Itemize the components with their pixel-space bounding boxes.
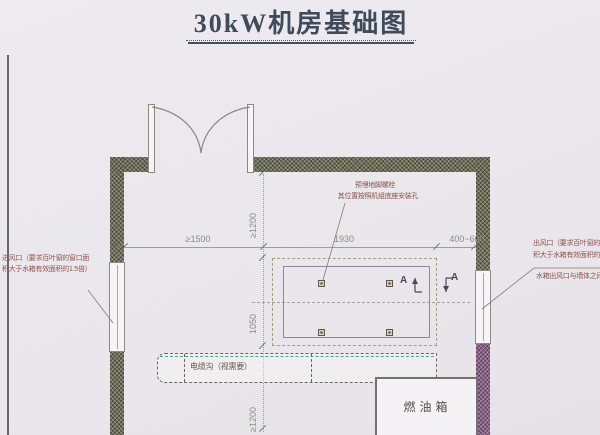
air-inlet-note-line2: 积大于水箱有效面积的1.5倍） — [2, 264, 91, 275]
vertical-centerline — [263, 174, 264, 432]
cable-trench-top-edge — [160, 356, 434, 357]
anchor-bolt — [318, 329, 325, 336]
wall-left-upper — [110, 157, 124, 262]
dim-wall-to-pad-top: ≥1200 — [248, 186, 258, 238]
cable-trench-divider — [311, 354, 312, 382]
air-outlet-note-line3: 水箱出风口与墙体之间 — [536, 271, 600, 282]
drawing-title: 30kW机房基础图 — [188, 3, 414, 44]
wall-left-lower — [110, 352, 124, 435]
anchor-bolt — [386, 329, 393, 336]
anchor-bolt-note-line1: 预埋地脚螺栓 — [330, 180, 420, 191]
door-leaf-right — [247, 104, 254, 173]
louver-line — [483, 273, 484, 341]
title-underline — [186, 40, 416, 41]
anchor-bolt — [386, 280, 393, 287]
air-inlet-louver — [109, 262, 125, 352]
dim-wall-to-pad-left: ≥1500 — [168, 234, 228, 244]
louver-line — [117, 265, 118, 349]
page-edge-line — [7, 55, 9, 435]
dimension-line-horizontal — [124, 247, 476, 248]
wall-right-upper — [476, 157, 490, 270]
section-arrowhead-2 — [443, 286, 449, 292]
dim-pad-to-bottom: ≥1200 — [248, 384, 258, 432]
dim-pad-length: 1930 — [316, 234, 372, 244]
air-outlet-note-line2: 积大于水箱有效面积的1 — [533, 250, 600, 261]
section-label-a2: A — [451, 272, 458, 283]
fuel-tank-label: 燃油箱 — [385, 398, 470, 415]
air-outlet-louver — [475, 270, 491, 344]
foundation-pad-inner — [283, 266, 430, 338]
air-outlet-note-line1: 出风口（要求百叶窗的窗 — [533, 238, 600, 249]
anchor-bolt-note-line2: 其位置按照机组底座安装孔 — [326, 191, 430, 202]
section-label-a1: A — [400, 275, 407, 286]
door-arc-left — [152, 107, 201, 153]
wall-right-lower — [476, 344, 490, 435]
door-leaf-left — [148, 104, 155, 173]
air-inlet-note-line1: 进风口（要求百叶窗的窗口面 — [2, 253, 89, 264]
dim-pad-width: 1050 — [248, 292, 258, 334]
wall-top-right — [251, 157, 490, 172]
cable-trench-divider — [184, 354, 185, 382]
dim-pad-to-wall-right: 400~600 — [439, 234, 495, 244]
door-arc-right — [201, 107, 250, 153]
foundation-drawing: 30kW机房基础图 ≥1500 1930 400~600 ≥1200 1050 … — [0, 0, 600, 435]
anchor-bolt — [318, 280, 325, 287]
cable-trench-label: 电缆沟（视需要） — [190, 361, 252, 372]
